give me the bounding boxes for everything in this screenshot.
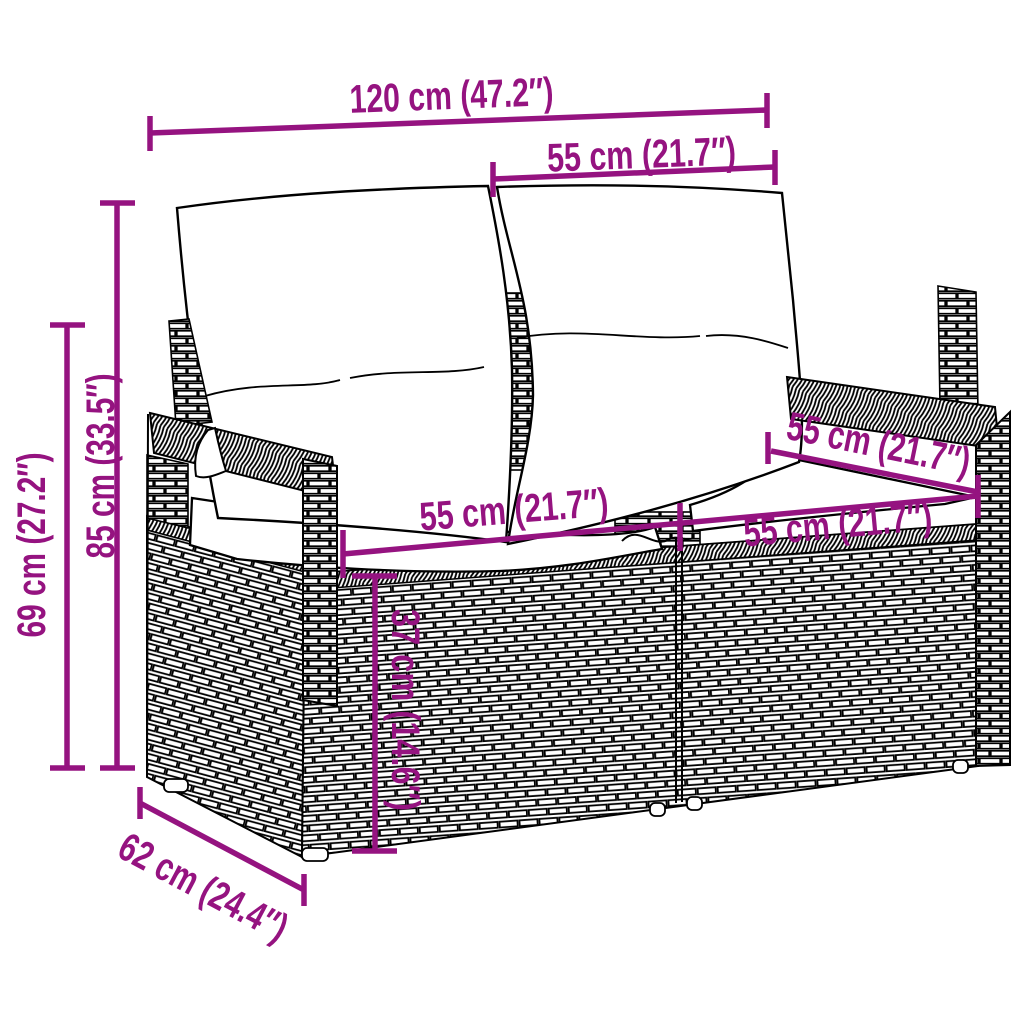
svg-text:69 cm (27.2″): 69 cm (27.2″) [10,453,54,638]
svg-text:37 cm (14.6″): 37 cm (14.6″) [383,609,427,811]
svg-text:120 cm (47.2″): 120 cm (47.2″) [349,70,555,122]
svg-text:85 cm (33.5″): 85 cm (33.5″) [79,374,123,559]
svg-text:55 cm (21.7″): 55 cm (21.7″) [546,129,737,180]
